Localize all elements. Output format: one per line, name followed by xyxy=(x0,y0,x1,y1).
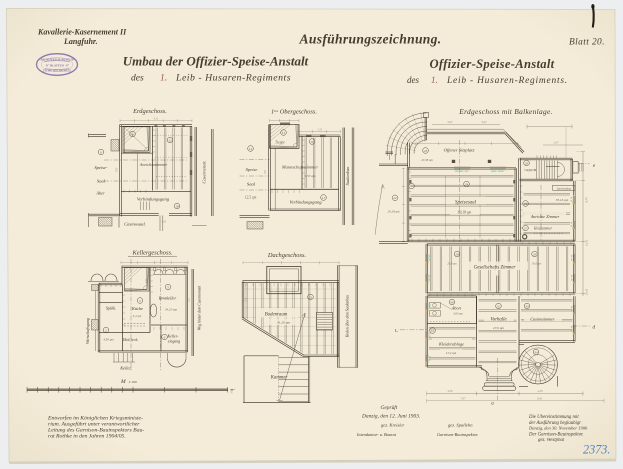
svg-text:2373.: 2373. xyxy=(583,443,610,457)
